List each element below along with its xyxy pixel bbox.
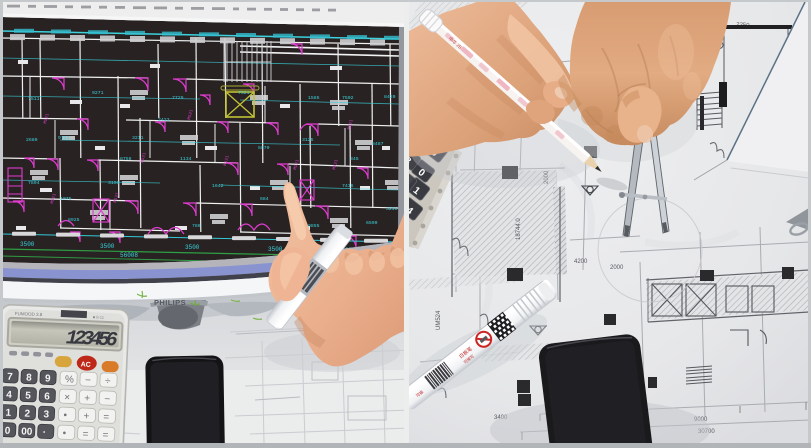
svg-text:8420: 8420 <box>384 94 396 100</box>
svg-text:PHILIPS: PHILIPS <box>154 298 186 307</box>
svg-text:7502: 7502 <box>342 95 354 101</box>
svg-text:1585: 1585 <box>308 95 320 101</box>
svg-text:+: + <box>83 411 89 422</box>
svg-text:6590: 6590 <box>366 220 378 226</box>
svg-text:00: 00 <box>21 426 33 437</box>
svg-text:−: − <box>104 394 110 405</box>
svg-text:3150: 3150 <box>108 180 120 186</box>
svg-text:1134: 1134 <box>180 156 192 162</box>
svg-text:8487: 8487 <box>372 141 384 147</box>
svg-text:9723: 9723 <box>58 135 70 141</box>
svg-text:18744.0: 18744.0 <box>516 218 522 240</box>
svg-text:0: 0 <box>4 426 10 437</box>
svg-text:7: 7 <box>7 372 13 383</box>
svg-text:123456: 123456 <box>65 327 118 352</box>
svg-text:=: = <box>103 412 109 423</box>
svg-text:345: 345 <box>350 156 359 162</box>
svg-text:3500: 3500 <box>185 244 200 251</box>
svg-text:2423: 2423 <box>158 117 170 123</box>
svg-text:6: 6 <box>44 391 50 402</box>
svg-text:3216: 3216 <box>386 206 398 212</box>
svg-text:3500: 3500 <box>100 243 115 250</box>
svg-text:4: 4 <box>6 390 12 401</box>
svg-text:4200: 4200 <box>574 259 588 265</box>
svg-text:8925: 8925 <box>68 217 80 223</box>
svg-text:+: + <box>84 393 90 404</box>
svg-text:3211: 3211 <box>132 135 144 141</box>
svg-text:■ 8-11: ■ 8-11 <box>93 314 105 320</box>
svg-text:9855: 9855 <box>308 223 320 229</box>
svg-text:9: 9 <box>45 373 51 384</box>
svg-text:5070: 5070 <box>258 145 270 151</box>
svg-text:1: 1 <box>5 408 11 419</box>
svg-text:7511: 7511 <box>28 96 40 102</box>
svg-text:684: 684 <box>260 196 269 202</box>
svg-text:3: 3 <box>43 409 49 420</box>
svg-text:5: 5 <box>25 391 31 402</box>
svg-text:AC: AC <box>81 361 91 368</box>
svg-text:·: · <box>42 427 46 438</box>
svg-text:2680: 2680 <box>26 137 38 143</box>
svg-text:2000: 2000 <box>610 265 624 271</box>
svg-text:8756: 8756 <box>120 156 132 162</box>
svg-text:7729: 7729 <box>172 95 184 101</box>
svg-text:786: 786 <box>192 223 201 229</box>
svg-text:7894: 7894 <box>28 180 40 186</box>
svg-text:÷: ÷ <box>105 376 111 387</box>
svg-text:3500: 3500 <box>20 241 35 248</box>
svg-text:9271: 9271 <box>92 90 104 96</box>
svg-text:%: % <box>65 374 74 385</box>
svg-text:7521: 7521 <box>238 90 250 96</box>
svg-text:7416: 7416 <box>342 183 354 189</box>
svg-text:56008: 56008 <box>120 252 138 259</box>
svg-text:UM524: UM524 <box>436 310 442 330</box>
svg-text:×: × <box>64 392 70 403</box>
svg-text:1075: 1075 <box>60 196 72 202</box>
svg-text:1642: 1642 <box>212 183 224 189</box>
svg-text:3125: 3125 <box>302 137 314 143</box>
svg-text:=: = <box>102 430 108 441</box>
svg-text:=: = <box>82 429 88 440</box>
svg-text:−: − <box>85 375 91 386</box>
svg-text:8: 8 <box>26 373 32 384</box>
svg-text:2: 2 <box>24 408 30 419</box>
